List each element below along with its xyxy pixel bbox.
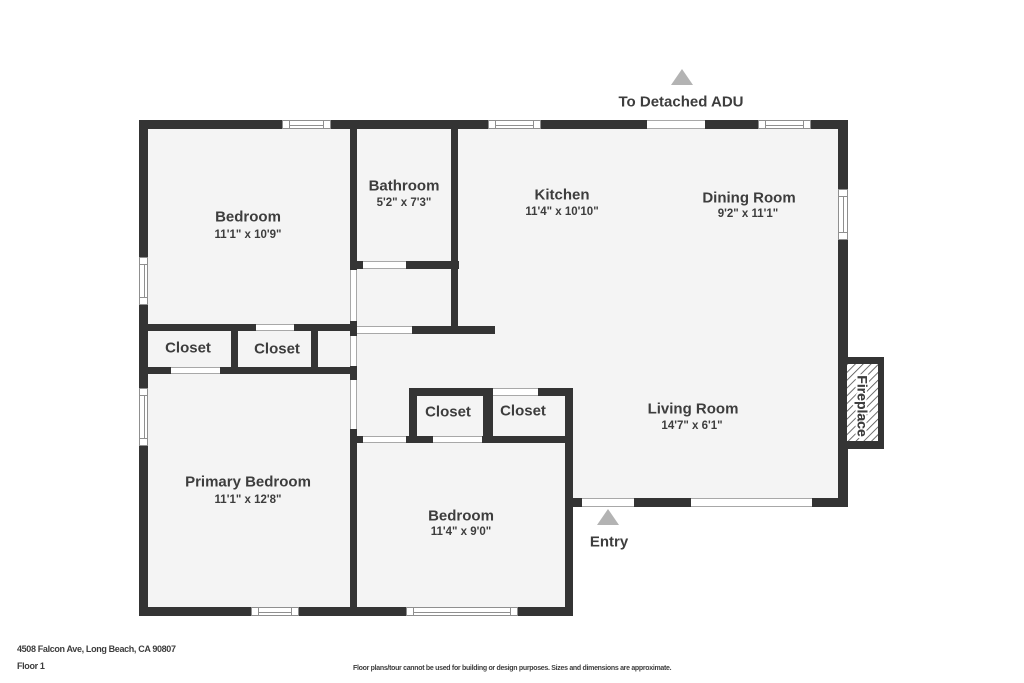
svg-text:Fireplace: Fireplace xyxy=(855,375,871,437)
